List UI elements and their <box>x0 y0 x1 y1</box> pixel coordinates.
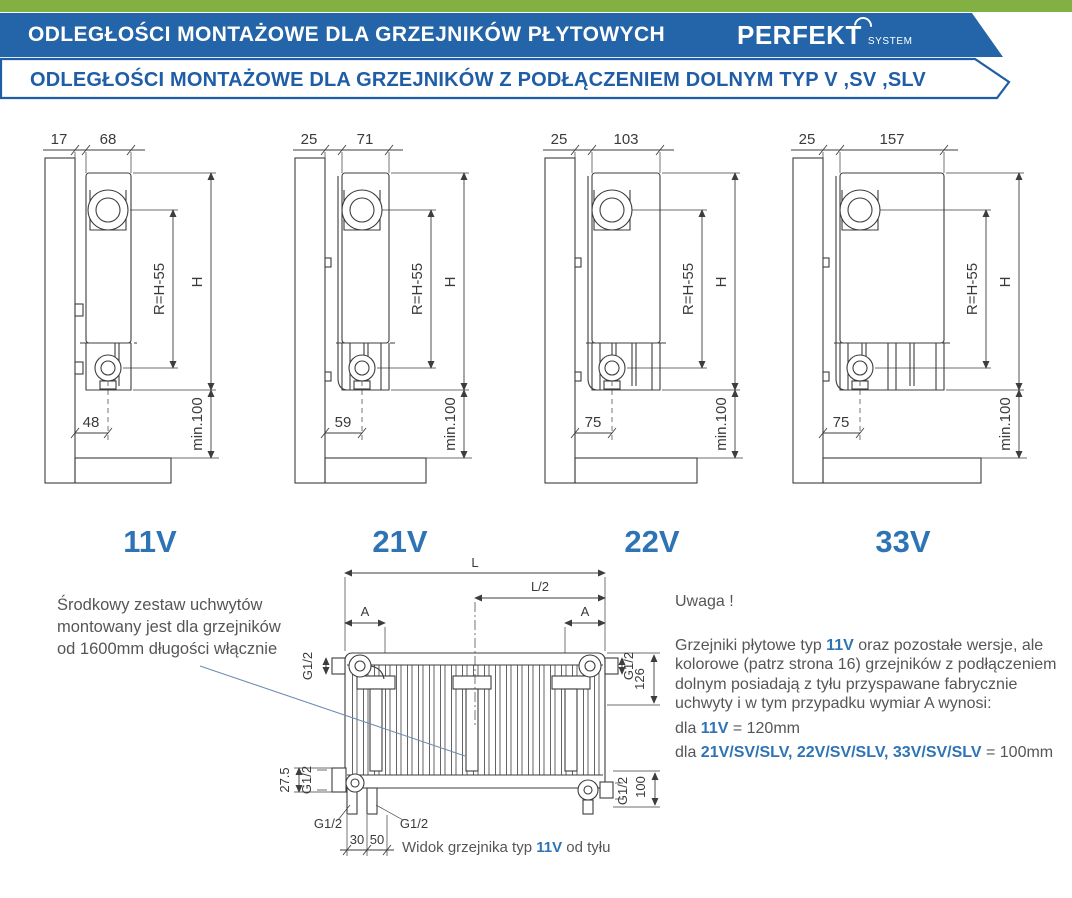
title-banner: ODLEGŁOŚCI MONTAŻOWE DLA GRZEJNIKÓW PŁYT… <box>0 13 1003 57</box>
dim-h: H <box>713 277 730 288</box>
fitting-bottom-left <box>332 768 346 792</box>
dim-floor-gap: min.100 <box>997 397 1014 450</box>
dim-r: R=H-55 <box>680 263 697 315</box>
uwaga-type-11v: 11V <box>826 637 854 654</box>
floor <box>75 458 171 483</box>
uwaga-dla-other: dla 21V/SV/SLV, 22V/SV/SLV, 33V/SV/SLV =… <box>675 743 1072 763</box>
dim-floor-gap: min.100 <box>713 397 730 450</box>
wall-bracket <box>823 258 829 267</box>
brick-wall <box>45 158 75 483</box>
dim-bottom-offset: 75 <box>833 414 850 431</box>
top-valve <box>342 190 382 230</box>
type-label-11v: 11V <box>123 524 177 559</box>
brick-wall <box>545 158 575 483</box>
type-label-33v: 33V <box>875 524 930 559</box>
page-title: ODLEGŁOŚCI MONTAŻOWE DLA GRZEJNIKÓW PŁYT… <box>28 13 665 57</box>
uwaga-note: Uwaga ! Grzejniki płytowe typ 11V oraz p… <box>675 592 1072 763</box>
perfekt-logo: PERFEKT SYSTEM <box>737 13 913 57</box>
green-top-strip <box>0 0 1072 12</box>
g12-top-left-label: G1/2 <box>300 652 315 680</box>
dim-30: 30 <box>350 832 364 847</box>
wall-bracket <box>75 362 83 374</box>
dim-h: H <box>189 277 206 288</box>
dim-r: R=H-55 <box>964 263 981 315</box>
fitting-bottom-right <box>578 780 598 800</box>
top-valve <box>840 190 880 230</box>
dim-27-5: 27.5 <box>277 767 292 792</box>
rear-view-caption: Widok grzejnika typ 11V od tyłu <box>402 839 610 856</box>
page-subtitle: ODLEGŁOŚCI MONTAŻOWE DLA GRZEJNIKÓW Z PO… <box>30 67 926 91</box>
wall-bracket <box>75 304 83 316</box>
wall-bracket <box>575 372 581 381</box>
fitting-top-left <box>332 658 345 674</box>
subtitle-banner: ODLEGŁOŚCI MONTAŻOWE DLA GRZEJNIKÓW Z PO… <box>0 55 1015 101</box>
top-valve <box>88 190 128 230</box>
caption-type: 11V <box>536 839 562 856</box>
wall-bracket <box>575 258 581 267</box>
fitting-top-right <box>605 658 618 674</box>
dim-bottom-offset: 48 <box>83 414 100 431</box>
floor <box>575 458 697 483</box>
logo-main-text: PERFEKT <box>737 20 862 51</box>
dim-h: H <box>442 277 459 288</box>
dim-wall-gap: 25 <box>301 131 318 148</box>
bottom-pipe-2 <box>367 788 377 814</box>
dim-wall-gap: 25 <box>551 131 568 148</box>
dim-floor-gap: min.100 <box>189 397 206 450</box>
dim-depth: 71 <box>357 131 374 148</box>
g12-bottom-mid-label: G1/2 <box>400 816 428 831</box>
bottom-valve <box>349 355 375 381</box>
dim-floor-gap: min.100 <box>442 397 459 450</box>
dim-depth: 68 <box>100 131 117 148</box>
dim-depth: 157 <box>879 131 904 148</box>
brick-wall <box>793 158 823 483</box>
diagram-11v-side-view: 17 68 R=H-55 H min.100 48 11V <box>15 128 265 560</box>
mounting-bracket-right <box>552 676 590 689</box>
mounting-bracket-center <box>453 676 491 689</box>
dim-126: 126 <box>632 668 647 690</box>
logo-sub-text: SYSTEM <box>868 36 913 47</box>
dim-wall-gap: 25 <box>799 131 816 148</box>
uwaga-paragraph: Grzejniki płytowe typ 11V oraz pozostałe… <box>675 636 1072 714</box>
dim-bottom-offset: 75 <box>585 414 602 431</box>
dim-l: L <box>471 555 478 570</box>
bottom-valve <box>847 355 873 381</box>
wall-bracket <box>325 258 331 267</box>
dim-depth: 103 <box>613 131 638 148</box>
g12-bottom-right-label: G1/2 <box>615 777 630 805</box>
dim-100: 100 <box>633 776 648 798</box>
uwaga-dla-11v: dla 11V = 120mm <box>675 719 1072 739</box>
dim-50: 50 <box>370 832 384 847</box>
dim-l2: L/2 <box>531 579 549 594</box>
brick-wall <box>295 158 325 483</box>
dim-a-left: A <box>361 604 370 619</box>
uwaga-title: Uwaga ! <box>675 592 1072 612</box>
g12-bottom-left-label: G1/2 <box>314 816 342 831</box>
mounting-bracket-left <box>357 676 395 689</box>
wall-bracket <box>823 372 829 381</box>
dim-a-right: A <box>581 604 590 619</box>
floor <box>325 458 426 483</box>
dim-wall-gap: 17 <box>51 131 68 148</box>
dim-r: R=H-55 <box>151 263 168 315</box>
top-valve <box>592 190 632 230</box>
dim-r: R=H-55 <box>409 263 426 315</box>
g12-bottom-left-side-label: G1/2 <box>299 766 314 794</box>
diagram-33v-side-view: 25 157 R=H-55 H min.100 75 33V <box>763 128 1053 560</box>
diagram-21v-side-view: 25 71 R=H-55 H min.100 59 21V <box>265 128 515 560</box>
bottom-valve <box>599 355 625 381</box>
diagram-22v-side-view: 25 103 R=H-55 H min.100 75 22V <box>515 128 765 560</box>
wall-bracket <box>325 372 331 381</box>
bottom-valve <box>95 355 121 381</box>
floor <box>823 458 981 483</box>
dim-bottom-offset: 59 <box>335 414 352 431</box>
dim-h: H <box>997 277 1014 288</box>
